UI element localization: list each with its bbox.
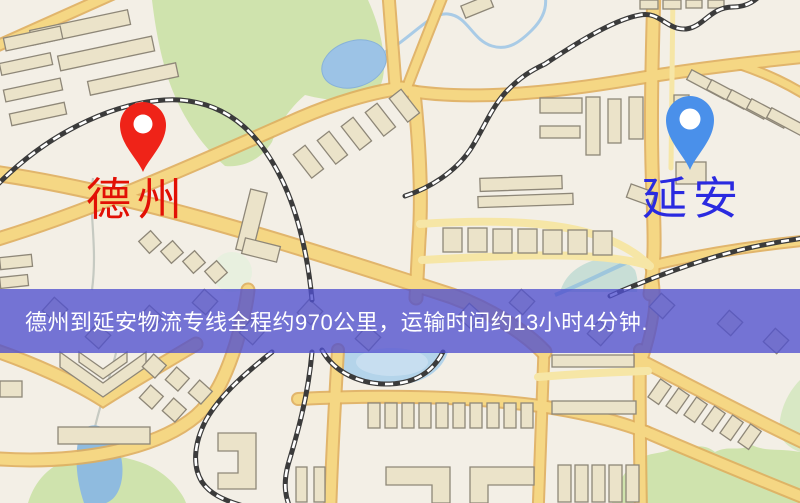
map-canvas[interactable] [0,0,800,503]
route-info-banner: 德州到延安物流专线全程约970公里，运输时间约13小时4分钟. [0,289,800,353]
destination-pin-hole [680,109,701,130]
destination-label: 延安 [642,176,744,221]
origin-label: 德州 [86,177,188,222]
map-view: 德州 延安 德州到延安物流专线全程约970公里，运输时间约13小时4分钟. [0,0,800,503]
origin-pin-hole [134,115,153,134]
destination-pin-icon[interactable] [659,92,721,172]
origin-pin-icon[interactable] [113,98,173,176]
route-info-text: 德州到延安物流专线全程约970公里，运输时间约13小时4分钟. [25,305,648,337]
